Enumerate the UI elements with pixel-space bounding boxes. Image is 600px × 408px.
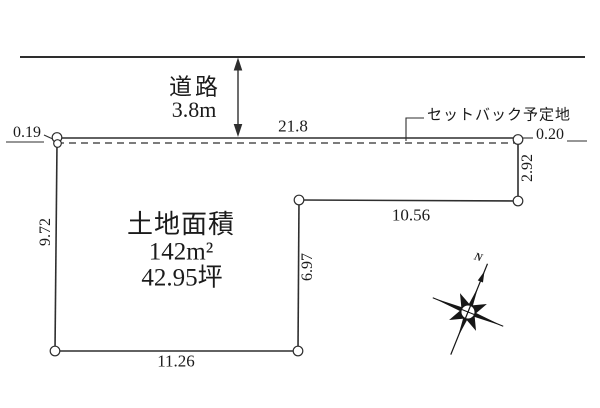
road-label: 道路 xyxy=(169,76,221,99)
road-width-label: 3.8m xyxy=(172,99,217,121)
dimension-left-label: 9.72 xyxy=(38,218,54,246)
vertex-marker xyxy=(50,346,60,356)
vertex-markers xyxy=(50,133,523,356)
vertex-marker xyxy=(294,195,304,205)
parcel-area-sqm: 142m² xyxy=(149,240,213,265)
dimension-left-gap-label: 0.19 xyxy=(13,125,41,141)
dimension-right-label: 2.92 xyxy=(520,154,536,182)
vertex-marker xyxy=(293,346,303,356)
vertex-marker xyxy=(513,135,523,145)
boundary-step-horizontal xyxy=(299,200,518,201)
dimension-step-h-label: 10.56 xyxy=(392,207,430,224)
dimension-step-v-label: 6.97 xyxy=(300,253,316,281)
vertex-marker xyxy=(54,140,62,148)
land-survey-diagram: 道路 3.8m セットバック予定地 0.19 0.20 21.8 2.92 10… xyxy=(0,0,600,408)
dimension-front-label: 21.8 xyxy=(278,118,308,135)
site-plan-drawing xyxy=(0,0,600,408)
vertex-marker xyxy=(513,196,523,206)
dimension-bottom-label: 11.26 xyxy=(157,353,195,370)
road-width-arrow-icon xyxy=(234,58,243,138)
parcel-area-title: 土地面積 xyxy=(127,212,235,238)
boundary-left xyxy=(55,143,57,351)
parcel-area-tsubo: 42.95坪 xyxy=(141,266,222,291)
compass-rose-icon xyxy=(416,250,523,369)
dimension-right-gap-label: 0.20 xyxy=(536,127,564,143)
setback-area-label: セットバック予定地 xyxy=(427,109,571,124)
